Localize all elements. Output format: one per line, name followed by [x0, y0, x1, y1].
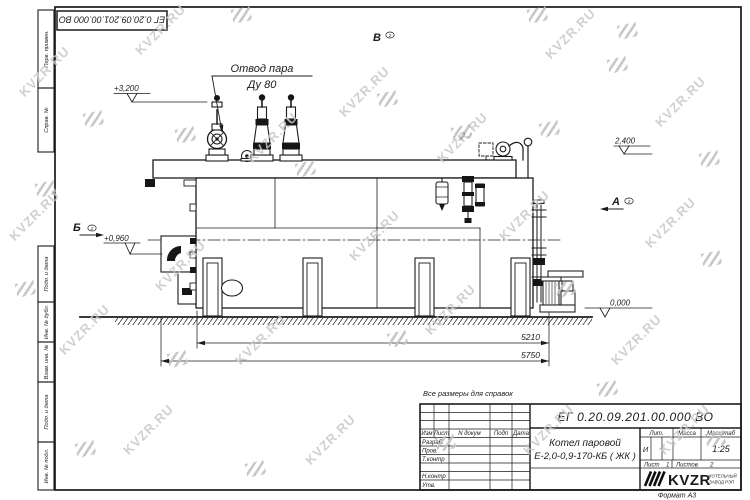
tb-list-value: 1: [666, 463, 669, 469]
tb-lit-section: Лит. Масса Масштаб И 1:25 Лист 1 Листов …: [643, 431, 736, 469]
safety-valve-1: [251, 94, 273, 161]
tb-masshtab-value: 1:25: [712, 444, 731, 454]
view-ref-a: 2: [627, 199, 631, 204]
elevation-right: 2,400: [614, 137, 636, 146]
feed-pump-unit: [540, 271, 583, 312]
tb-col-izm: Изм: [421, 431, 432, 437]
tb-col-list: Лист: [433, 431, 449, 437]
tb-row-tkontr: Т.контр: [422, 457, 445, 463]
tb-sign-rows: Разраб. Пров. Т.контр Н.контр Утв.: [421, 440, 446, 489]
sheet-svg: Перв. примен. Справ. № Подп. и дата Инв.…: [0, 0, 750, 500]
tb-lit-value: И: [643, 445, 649, 454]
ground-hatch: [115, 318, 592, 325]
kvzr-logo: KVZR КОТЕЛЬНЫЙ ЗАВОД РЭП: [645, 472, 737, 490]
hidden-component: [479, 143, 493, 156]
margin-label-podp1: Подп. и дата: [44, 256, 50, 291]
kvzr-logo-icon: [645, 472, 665, 487]
margin-label-vzam: Взам. инв. №: [44, 345, 50, 380]
manhole: [222, 280, 243, 296]
tb-listov-label: Листов: [675, 463, 698, 469]
elevation-ground: 0,000: [610, 299, 631, 308]
view-ref-b: 2: [90, 226, 94, 231]
tb-col-data: Дата: [512, 431, 529, 437]
boiler-drawing: [80, 32, 652, 366]
top-stamp-number: ЕГ 0.20.09.201.00.000 ВО: [59, 15, 165, 25]
tb-product-line1: Котел паровой: [549, 438, 621, 449]
tb-listov-value: 2: [709, 463, 714, 469]
elevation-burner: +0,960: [104, 234, 129, 243]
view-ref-v: 2: [388, 33, 392, 38]
view-label-b: Б: [73, 222, 81, 234]
callout-steam-line1: Отвод пара: [231, 63, 294, 75]
tb-header-row: Изм Лист N докум Подп Дата: [421, 431, 529, 437]
tb-doc-number: ЕГ 0.20.09.201.00.000 ВО: [557, 410, 713, 424]
drawing-sheet: Перв. примен. Справ. № Подп. и дата Инв.…: [0, 0, 750, 500]
title-block: ЕГ 0.20.09.201.00.000 ВО Котел паровой Е…: [420, 404, 741, 490]
tb-lit-label: Лит.: [648, 431, 663, 437]
margin-label-dubl: Инв. № дубл.: [44, 305, 50, 339]
format-note: Формат А3: [658, 493, 696, 500]
tb-row-nkontr: Н.контр: [422, 474, 446, 480]
tb-row-utv: Утв.: [421, 483, 436, 489]
margin-label-sprav: Справ. №: [44, 107, 50, 132]
tb-row-razrab: Разраб.: [422, 440, 444, 446]
tb-list-label: Лист: [643, 463, 659, 469]
dim-inner: 5210: [521, 332, 540, 342]
boiler-slab: [153, 160, 516, 178]
dim-overall: 5750: [521, 350, 540, 360]
kvzr-logo-sub2: ЗАВОД РЭП: [709, 480, 735, 485]
tb-massa-label: Масса: [678, 431, 696, 437]
reference-note: Все размеры для справок: [423, 389, 513, 398]
tb-col-ndokum: N докум: [458, 431, 481, 437]
margin-label-podl: Инв. № подл.: [44, 449, 50, 484]
kvzr-logo-sub1: КОТЕЛЬНЫЙ: [709, 474, 737, 479]
tb-row-prov: Пров.: [422, 449, 438, 455]
tb-product-line2: Е-2,0-0,9-170-КБ ( ЖК ): [534, 451, 636, 462]
margin-labels: Перв. примен. Справ. № Подп. и дата Инв.…: [44, 30, 50, 483]
margin-label-podp2: Подп. и дата: [44, 394, 50, 429]
burner: [145, 179, 196, 304]
tb-masshtab-label: Масштаб: [707, 431, 736, 437]
view-label-v: В: [373, 32, 381, 44]
elevation-top: +3,200: [114, 84, 139, 93]
callout-steam-line2: Ду 80: [246, 79, 278, 91]
margin-label-perv: Перв. примен.: [44, 30, 50, 67]
view-label-a: А: [611, 196, 620, 208]
tb-col-podp: Подп: [494, 431, 509, 437]
kvzr-logo-text: KVZR: [668, 472, 711, 489]
safety-valve-2: [280, 94, 302, 161]
